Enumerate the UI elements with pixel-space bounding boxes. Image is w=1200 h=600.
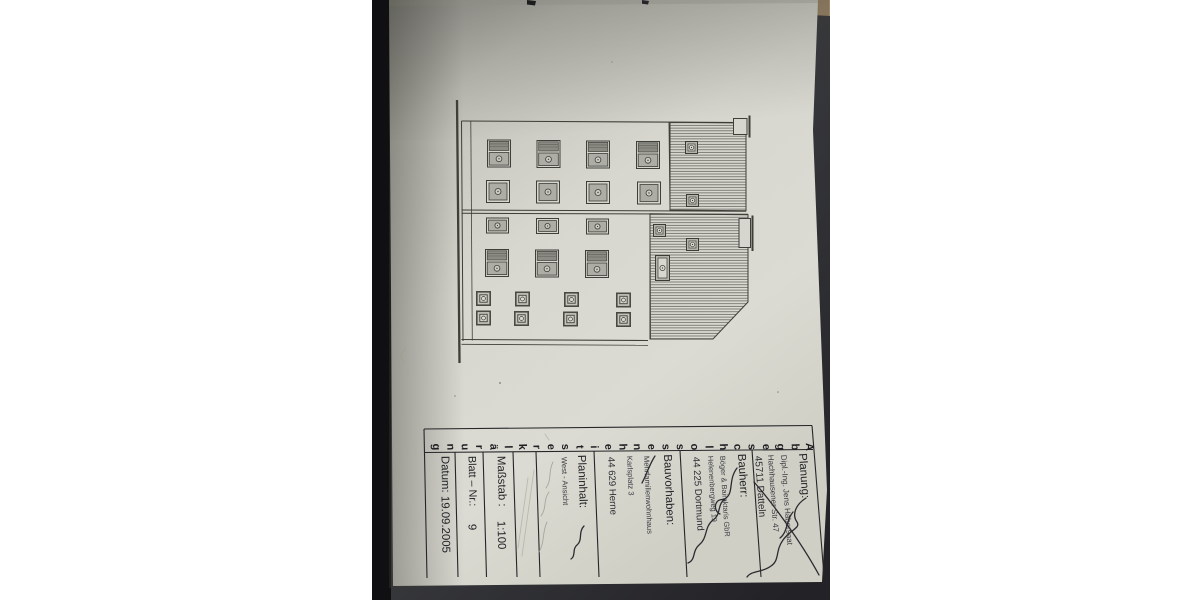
vertical-letter: i <box>588 445 600 448</box>
vertical-letter: A <box>803 443 815 451</box>
vertical-letter: e <box>760 444 772 450</box>
vertical-letter: u <box>459 443 471 450</box>
field-datum-value: 19.09.2005 <box>439 496 452 553</box>
speck <box>499 382 501 384</box>
vertical-letter: e <box>545 444 557 450</box>
small-window <box>516 292 529 305</box>
roof-window <box>654 225 666 237</box>
window-plain <box>587 219 609 234</box>
vertical-letter: s <box>746 444 758 450</box>
small-window <box>477 311 490 324</box>
vertical-letter: g <box>430 443 442 450</box>
paper-top-shadow <box>389 0 829 140</box>
speck <box>777 391 779 393</box>
chimney <box>739 219 751 248</box>
vertical-letter: n <box>631 443 643 450</box>
speck <box>611 61 613 63</box>
window-plain <box>638 182 661 204</box>
speck <box>454 395 456 397</box>
window-shuttered <box>537 141 560 168</box>
photo-of-architectural-plan: Abgeschlossenheitserklärung Datum: 19.09… <box>372 0 830 600</box>
vertical-letter: b <box>789 443 801 450</box>
window-plain <box>537 181 560 203</box>
roof-window <box>687 239 699 251</box>
field-planinhalt-label: Planinhalt: <box>575 455 589 509</box>
small-window <box>477 292 490 305</box>
vertical-letter: o <box>688 443 700 450</box>
vertical-letter: s <box>674 444 686 450</box>
vertical-letter: h <box>717 443 729 450</box>
page: { "document": { "type_label_vertical": "… <box>0 0 1200 600</box>
small-window <box>617 293 630 306</box>
vertical-letter: e <box>645 444 657 450</box>
window-shuttered <box>486 250 509 277</box>
vertical-letter: s <box>659 444 671 450</box>
roof-window-tall <box>656 256 670 281</box>
vertical-letter: t <box>573 445 585 449</box>
window-plain <box>487 218 509 233</box>
small-window <box>565 293 578 306</box>
vertical-letter: g <box>774 443 786 450</box>
field-datum-label: Datum: <box>439 456 452 493</box>
window-plain <box>587 182 610 204</box>
roof-window <box>686 142 698 154</box>
window-shuttered <box>637 142 660 169</box>
small-window <box>617 313 630 326</box>
field-planinhalt-line1: West - Ansicht <box>560 457 571 507</box>
vertical-letter: e <box>602 444 614 450</box>
window-shuttered <box>536 250 559 277</box>
vertical-letter: l <box>502 445 514 448</box>
roof-window <box>687 195 699 207</box>
chimney <box>734 119 748 135</box>
window-shuttered <box>586 251 609 278</box>
shadow-edge <box>372 0 391 600</box>
window-shuttered <box>587 141 610 168</box>
window-plain <box>537 219 559 234</box>
vertical-letter: n <box>444 443 456 450</box>
small-window <box>564 312 577 325</box>
window-plain <box>487 181 510 203</box>
field-massstab-value: 1:100 <box>495 521 508 550</box>
vertical-letter: s <box>559 444 571 450</box>
field-bauvorhaben-line2: Karlsplatz 3 <box>625 456 636 496</box>
vertical-letter: h <box>616 443 628 450</box>
field-massstab-label: Maßstab : <box>495 456 508 507</box>
vertical-letter: c <box>731 444 743 450</box>
field-blatt-label: Blatt – Nr.: <box>466 456 479 507</box>
small-window <box>515 312 528 325</box>
vertical-letter: l <box>703 445 715 448</box>
window-shuttered <box>488 140 511 167</box>
field-blatt-value: 9 <box>466 524 478 531</box>
roof-upper <box>670 122 746 211</box>
